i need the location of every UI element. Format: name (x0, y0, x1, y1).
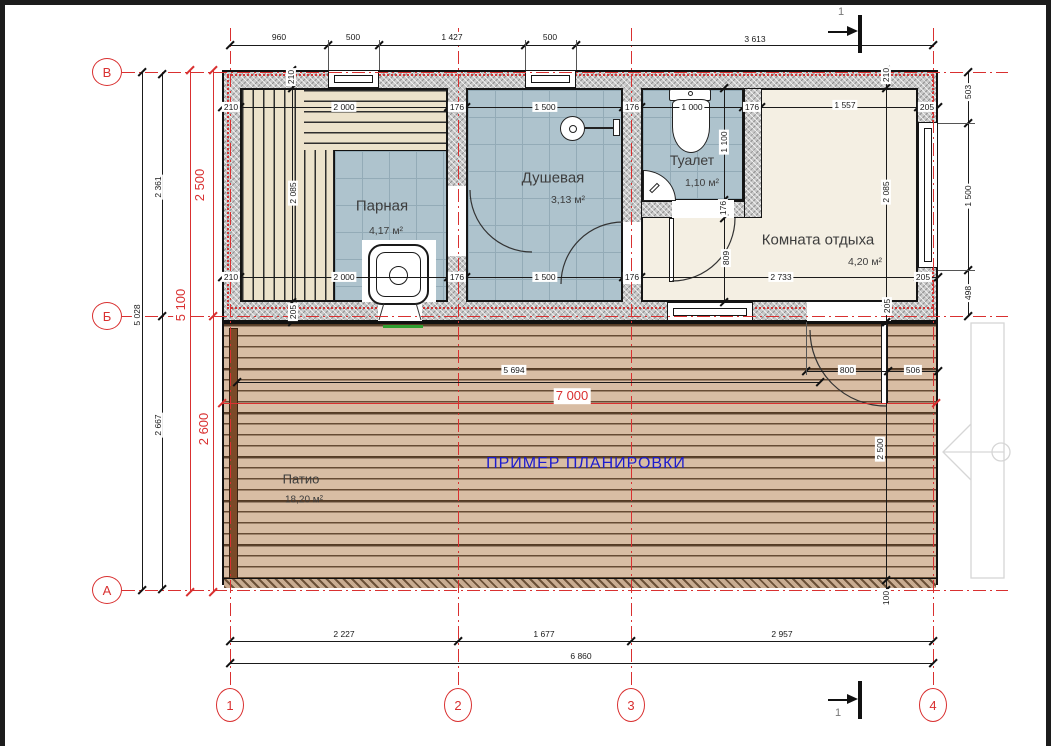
dim-label: 2 667 (153, 412, 163, 437)
stove-tunnel-lines (379, 303, 421, 320)
axis-bubble-col: 4 (919, 688, 947, 722)
dim-label: 2 000 (331, 272, 356, 282)
ghost-symbol (943, 323, 1010, 578)
extension-line (938, 123, 975, 124)
axis-bubble-row: А (92, 576, 122, 604)
axis-bubble-col: 2 (444, 688, 472, 722)
extension-line (525, 40, 526, 70)
dim-label: 809 (721, 249, 731, 267)
plan-note: ПРИМЕР ПЛАНИРОВКИ (486, 455, 686, 473)
dim-label: 205 (914, 272, 932, 282)
dim-label: 1 500 (532, 102, 557, 112)
dim-label: 7 000 (554, 388, 591, 404)
extension-line (938, 270, 975, 271)
section-marker-label: 1 (835, 707, 841, 719)
dim-label: 176 (718, 199, 728, 217)
dim-label: 2 600 (196, 411, 212, 448)
dim-label: 205 (882, 297, 892, 315)
axis-bubble-row: В (92, 58, 122, 86)
dim-label: 176 (623, 102, 641, 112)
grid-line-v-row (122, 72, 1008, 73)
grid-line-1 (230, 28, 231, 688)
dimension-line (222, 107, 938, 108)
section-marker-bar (858, 15, 862, 53)
dim-label: 1 500 (963, 183, 973, 208)
dimension-line (190, 70, 191, 592)
dim-label: 2 500 (192, 167, 208, 204)
axis-bubble-col: 3 (617, 688, 645, 722)
grid-line-2 (458, 28, 459, 688)
dim-label: 1 557 (832, 100, 857, 110)
dimension-line (230, 45, 933, 46)
dim-label: 500 (541, 32, 559, 42)
dim-label: 6 860 (568, 651, 593, 661)
dimension-line (222, 277, 938, 278)
room-label-steam: Парная (356, 198, 408, 215)
dimension-line (162, 74, 163, 589)
room-area-shower: 3,13 м² (551, 194, 585, 206)
room-label-shower: Душевая (522, 170, 585, 187)
dim-label: 176 (448, 102, 466, 112)
dim-label: 1 000 (679, 102, 704, 112)
dim-label: 2 733 (768, 272, 793, 282)
dim-label: 5 028 (132, 302, 142, 327)
dim-label: 210 (286, 68, 296, 86)
dim-label: 210 (881, 66, 891, 84)
extension-line (576, 40, 577, 70)
room-label-rest: Комната отдыха (762, 232, 875, 249)
dimension-line (142, 72, 143, 590)
axis-bubble-col: 1 (216, 688, 244, 722)
dim-label: 5 100 (173, 287, 189, 324)
dimension-line (237, 382, 820, 383)
dim-label: 2 000 (331, 102, 356, 112)
dim-label: 1 500 (532, 272, 557, 282)
dim-label: 2 227 (331, 629, 356, 639)
dimension-line (230, 641, 933, 642)
dimension-line (213, 70, 214, 592)
grid-line-a-row (122, 590, 1008, 591)
extension-line (806, 322, 807, 375)
door-arc-steam-shower (470, 190, 532, 252)
grid-line-b-row (122, 316, 1008, 317)
dim-label: 1 677 (531, 629, 556, 639)
dim-label: 2 957 (769, 629, 794, 639)
room-label-patio: Патио (283, 472, 320, 487)
dim-label: 176 (623, 272, 641, 282)
floor-plan-canvas: 9605001 4275003 6132102 0001761 5001761 … (0, 0, 1051, 746)
dim-label: 3 613 (742, 34, 767, 44)
dim-label: 506 (904, 365, 922, 375)
dim-label: 205 (918, 102, 936, 112)
dim-label: 498 (963, 284, 973, 302)
section-marker-label: 1 (838, 6, 844, 18)
dimension-line (724, 88, 725, 302)
dim-label: 2 500 (875, 436, 885, 461)
room-label-toilet: Туалет (670, 152, 714, 168)
dimension-line (230, 663, 933, 664)
dim-label: 100 (881, 589, 891, 607)
section-marker-arrow (847, 694, 858, 704)
axis-bubble-row: Б (92, 302, 122, 330)
extension-line (328, 40, 329, 70)
section-marker-bar (858, 681, 862, 719)
room-area-patio: 18,20 м² (285, 495, 323, 506)
dim-label: 503 (963, 83, 973, 101)
room-area-rest: 4,20 м² (848, 256, 882, 268)
dimension-line (886, 322, 887, 590)
dim-label: 2 361 (153, 174, 163, 199)
room-area-steam: 4,17 м² (369, 225, 403, 237)
dim-label: 2 085 (288, 180, 298, 205)
room-area-toilet: 1,10 м² (685, 177, 719, 189)
dim-label: 5 694 (501, 365, 526, 375)
grid-line-4 (933, 28, 934, 688)
dim-label: 500 (344, 32, 362, 42)
dim-label: 176 (743, 102, 761, 112)
door-arc-shower-hall (561, 222, 623, 284)
dim-label: 1 100 (719, 129, 729, 154)
dim-label: 2 085 (881, 179, 891, 204)
dim-label: 205 (288, 303, 298, 321)
dim-label: 210 (222, 102, 240, 112)
dim-label: 960 (270, 32, 288, 42)
extension-line (379, 40, 380, 70)
section-marker-arrow (847, 26, 858, 36)
grid-line-3 (631, 28, 632, 688)
dim-label: 210 (222, 272, 240, 282)
dim-label: 800 (838, 365, 856, 375)
dim-label: 1 427 (439, 32, 464, 42)
dim-label: 176 (448, 272, 466, 282)
